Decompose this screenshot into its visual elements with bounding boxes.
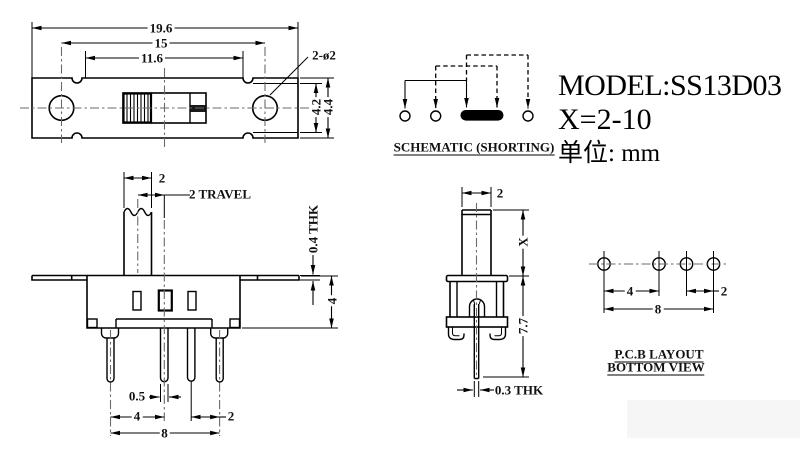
pcb-dim-label-span: 8	[653, 303, 664, 316]
shorting-contact-bar	[461, 110, 504, 121]
units-label: 单位: mm	[558, 141, 660, 167]
drawing-linework	[0, 0, 800, 450]
dim-label-overall-length: 19.6	[148, 22, 175, 35]
terminal-4	[523, 111, 533, 121]
pcb-caption-line2: BOTTOM VIEW	[607, 361, 704, 376]
pin3	[188, 328, 195, 381]
front-view	[32, 172, 338, 436]
hook-left-inner	[453, 327, 460, 336]
dim-label-travel: 2 TRAVEL	[189, 188, 251, 201]
body-corner-tab-left	[88, 319, 98, 328]
dim-label-hole-callout: 2-ø2	[312, 49, 336, 62]
front-view-centerlines	[111, 199, 220, 436]
terminal-2	[431, 111, 441, 121]
x-range: X=2-10	[558, 104, 652, 136]
dim-label-knob-width: 2	[159, 172, 166, 185]
wiring-dashed	[436, 55, 528, 81]
schematic-caption: SCHEMATIC (SHORTING)	[394, 141, 555, 156]
dim-label-total-height: 7.7	[517, 316, 530, 336]
scan-artifact	[627, 400, 800, 438]
dim-label-pin-pitch-right: 2	[228, 410, 235, 423]
dim-label-stem-height: X	[517, 235, 530, 248]
hook-right	[490, 327, 506, 340]
dim-label-body-height: 4	[325, 296, 338, 307]
hook-left	[449, 327, 465, 340]
terminal-1	[400, 111, 410, 121]
side-view-extension-lines	[462, 187, 529, 397]
contact-window-right	[188, 292, 196, 311]
dim-label-flange-thickness: 0.4 THK	[307, 203, 320, 255]
body-corner-tab-right	[230, 319, 240, 328]
dim-label-pin-thickness: 0.3 THK	[495, 384, 543, 397]
hole-callout-leader	[270, 57, 308, 95]
dim-label-pin-pitch-left: 4	[132, 410, 143, 423]
dim-label-hole-spacing: 15	[153, 37, 170, 50]
dim-label-knob-depth: 2	[497, 187, 504, 200]
contact-window-left	[133, 292, 141, 311]
dim-label-height-outer: 4.4	[322, 97, 335, 117]
engineering-drawing-canvas: 19.6 15 11.6 2-ø2 4.2 4.4 SCHEMATIC (SHO…	[0, 0, 800, 450]
mounting-flange	[32, 276, 299, 281]
side-view	[447, 187, 530, 397]
schematic-view	[400, 55, 533, 121]
dim-label-pin-width: 0.5	[129, 390, 145, 403]
body-outline	[87, 276, 240, 329]
model-number: MODEL:SS13D03	[558, 70, 782, 102]
pcb-dim-label-pitch-right: 2	[721, 285, 728, 298]
top-view-extension-lines	[32, 22, 334, 138]
hook-right-inner	[495, 327, 502, 336]
pcb-dim-label-pitch-left: 4	[625, 285, 636, 298]
dim-label-pin-span: 8	[159, 427, 170, 440]
contact-window-center	[159, 291, 172, 311]
top-view	[20, 22, 334, 148]
dim-label-window-length: 11.6	[139, 52, 165, 65]
